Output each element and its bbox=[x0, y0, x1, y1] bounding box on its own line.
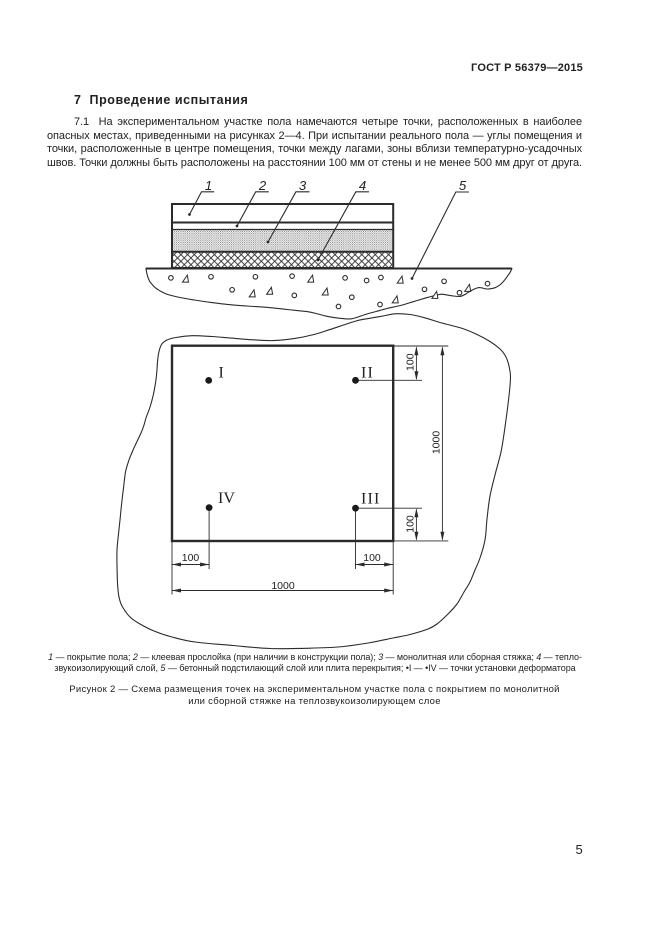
svg-text:100: 100 bbox=[363, 552, 381, 564]
svg-text:III: III bbox=[361, 490, 381, 507]
svg-text:100: 100 bbox=[405, 515, 417, 533]
svg-text:IV: IV bbox=[218, 490, 235, 507]
svg-text:1000: 1000 bbox=[431, 431, 443, 455]
svg-text:1: 1 bbox=[205, 178, 212, 193]
svg-text:4: 4 bbox=[359, 178, 366, 193]
svg-text:1000: 1000 bbox=[271, 580, 295, 592]
svg-text:II: II bbox=[361, 365, 374, 382]
svg-text:100: 100 bbox=[405, 353, 417, 371]
svg-text:2: 2 bbox=[258, 178, 267, 193]
svg-text:3: 3 bbox=[299, 178, 307, 193]
svg-text:I: I bbox=[219, 365, 224, 382]
svg-text:5: 5 bbox=[459, 178, 467, 193]
svg-text:100: 100 bbox=[182, 552, 200, 564]
